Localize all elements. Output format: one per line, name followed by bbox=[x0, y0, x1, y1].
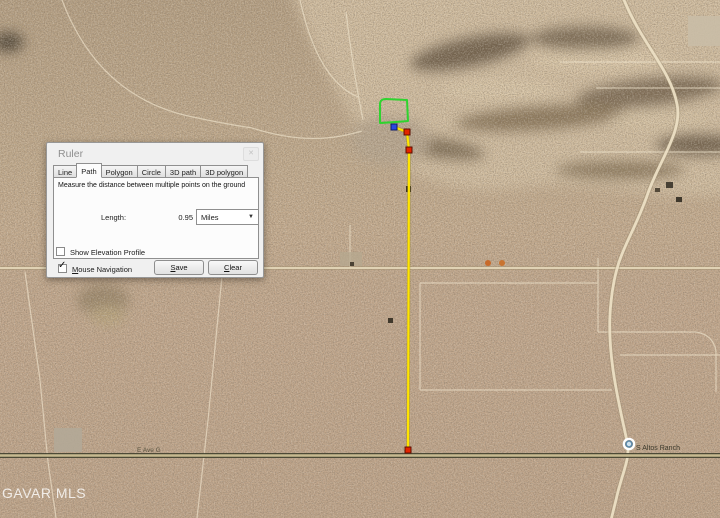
check-icon: ✓ bbox=[58, 260, 66, 271]
road-label-left: E Ave G bbox=[137, 447, 161, 454]
watermark-gavar-mls: GAVAR MLS bbox=[2, 485, 86, 501]
close-icon[interactable]: ✕ bbox=[243, 147, 259, 161]
length-label: Length: bbox=[101, 213, 126, 222]
tab-polygon[interactable]: Polygon bbox=[101, 165, 138, 178]
ruler-dialog-titlebar[interactable]: Ruler ✕ bbox=[47, 143, 263, 163]
unit-dropdown-value: Miles bbox=[201, 213, 219, 222]
ruler-tabstrip: Line Path Polygon Circle 3D path 3D poly… bbox=[53, 163, 248, 178]
ruler-description: Measure the distance between multiple po… bbox=[58, 182, 245, 189]
measurement-end-marker[interactable] bbox=[405, 447, 411, 453]
measurement-point-marker[interactable] bbox=[404, 129, 410, 135]
measurement-point-marker[interactable] bbox=[406, 147, 412, 153]
ruler-dialog-title: Ruler bbox=[58, 148, 83, 160]
road-label-right: S Altos Ranch bbox=[636, 445, 680, 452]
app-window: E Ave G S Altos Ranch Ruler ✕ Line Path … bbox=[0, 0, 720, 518]
tab-3d-path[interactable]: 3D path bbox=[165, 165, 201, 178]
placemark-icon[interactable] bbox=[624, 439, 634, 449]
unit-dropdown[interactable]: Miles ▼ bbox=[196, 209, 259, 225]
tab-circle[interactable]: Circle bbox=[137, 165, 166, 178]
measurement-start-marker[interactable] bbox=[391, 124, 397, 130]
mouse-navigation-label: Mouse Navigation bbox=[72, 265, 132, 274]
tab-3d-polygon[interactable]: 3D polygon bbox=[200, 165, 248, 178]
clear-button[interactable]: Clear bbox=[208, 260, 258, 275]
show-elevation-label: Show Elevation Profile bbox=[70, 248, 145, 257]
show-elevation-checkbox[interactable] bbox=[56, 247, 65, 256]
ruler-dialog: Ruler ✕ Line Path Polygon Circle 3D path… bbox=[46, 142, 264, 278]
tab-line[interactable]: Line bbox=[53, 165, 77, 178]
save-button[interactable]: Save bbox=[154, 260, 204, 275]
chevron-down-icon: ▼ bbox=[248, 214, 254, 220]
tab-path[interactable]: Path bbox=[76, 163, 101, 178]
length-value: 0.95 bbox=[163, 213, 193, 222]
